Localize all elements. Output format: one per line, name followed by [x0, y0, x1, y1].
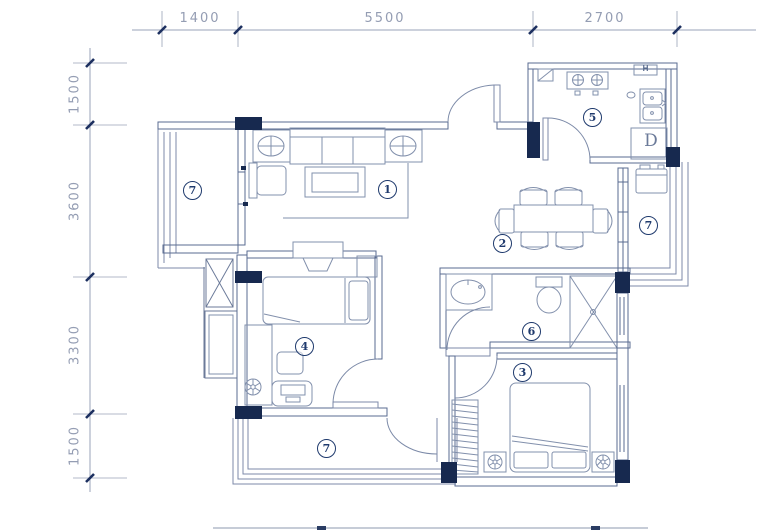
window-bedroom3	[620, 297, 624, 452]
side-table-lamp-icon	[385, 130, 422, 162]
toilet-icon	[536, 277, 562, 313]
duct-shaft	[204, 259, 237, 378]
corner-shelf-icon	[538, 69, 553, 81]
side-table-lamp-icon	[253, 130, 290, 162]
bottom-cropped-dimension-line	[213, 526, 648, 530]
room-label-bathroom: 6	[522, 322, 541, 341]
desk-chair	[277, 352, 303, 374]
room-label-kitchen: 5	[583, 108, 602, 127]
plant-icon	[488, 455, 502, 469]
dim-left-3300: 3300	[68, 315, 83, 375]
room-label-dining: 2	[493, 234, 512, 253]
room-label-bedroom3: 3	[513, 363, 532, 382]
dining-table	[514, 205, 593, 232]
cabinet-icon	[272, 381, 312, 406]
kitchen-door	[543, 118, 590, 160]
dining-set	[495, 188, 612, 250]
floor-plan-canvas: 1400 5500 2700 1500 3600 3300 1500 1 2 3…	[0, 0, 760, 530]
column	[615, 460, 630, 483]
double-sink-icon	[640, 89, 666, 123]
column	[615, 272, 630, 293]
dim-left-1500b: 1500	[68, 416, 83, 476]
bathroom-door	[446, 307, 490, 356]
washbasin-icon	[446, 274, 492, 310]
bedroom4-furniture	[245, 242, 377, 406]
sofa-icon	[290, 128, 385, 164]
nightstand	[357, 256, 377, 277]
tv-cabinet-icon	[293, 242, 343, 271]
stove-icon	[567, 72, 608, 95]
drain-icon	[627, 92, 635, 98]
single-bed	[263, 277, 370, 324]
armchair-icon	[249, 163, 286, 198]
living-room-walls	[247, 122, 528, 129]
double-bed	[510, 383, 590, 472]
bedroom3-door	[455, 356, 497, 398]
balcony-door-arc	[387, 418, 437, 454]
room-label-living: 1	[378, 180, 397, 199]
column	[441, 462, 457, 483]
balcony-bottom-structure	[233, 418, 457, 484]
dim-top-1400: 1400	[170, 11, 230, 26]
shower-icon	[570, 276, 617, 348]
room-label-balcony-bottom: 7	[317, 439, 336, 458]
floor-plan-drawing	[0, 0, 760, 530]
bedroom3-furniture	[452, 383, 614, 474]
dim-top-2700: 2700	[575, 11, 635, 26]
room-label-balcony-right: 7	[639, 216, 658, 235]
plant-icon	[596, 455, 610, 469]
column	[235, 271, 262, 283]
dim-top-5500: 5500	[355, 11, 415, 26]
column	[235, 117, 262, 130]
room-label-bedroom4: 4	[295, 337, 314, 356]
column	[235, 406, 262, 419]
door-handle-icon	[241, 166, 246, 170]
dim-left-1500a: 1500	[68, 64, 83, 124]
water-heater-icon	[636, 165, 667, 193]
appliance-label: D	[640, 131, 662, 151]
range-hood-label: H	[634, 63, 657, 73]
column	[527, 122, 540, 158]
room-label-balcony-left: 7	[183, 181, 202, 200]
window-dining-balcony	[618, 168, 628, 272]
dim-left-3600: 3600	[68, 171, 83, 231]
door-handle-icon	[243, 202, 248, 206]
living-furniture	[249, 128, 422, 218]
entry-door	[448, 85, 500, 122]
sliding-door-living	[238, 129, 245, 245]
bedroom4-door	[333, 359, 378, 408]
bathroom-fixtures	[446, 274, 617, 356]
balcony-left-structure	[158, 122, 248, 268]
coffee-table-icon	[305, 167, 365, 197]
column	[666, 147, 680, 167]
